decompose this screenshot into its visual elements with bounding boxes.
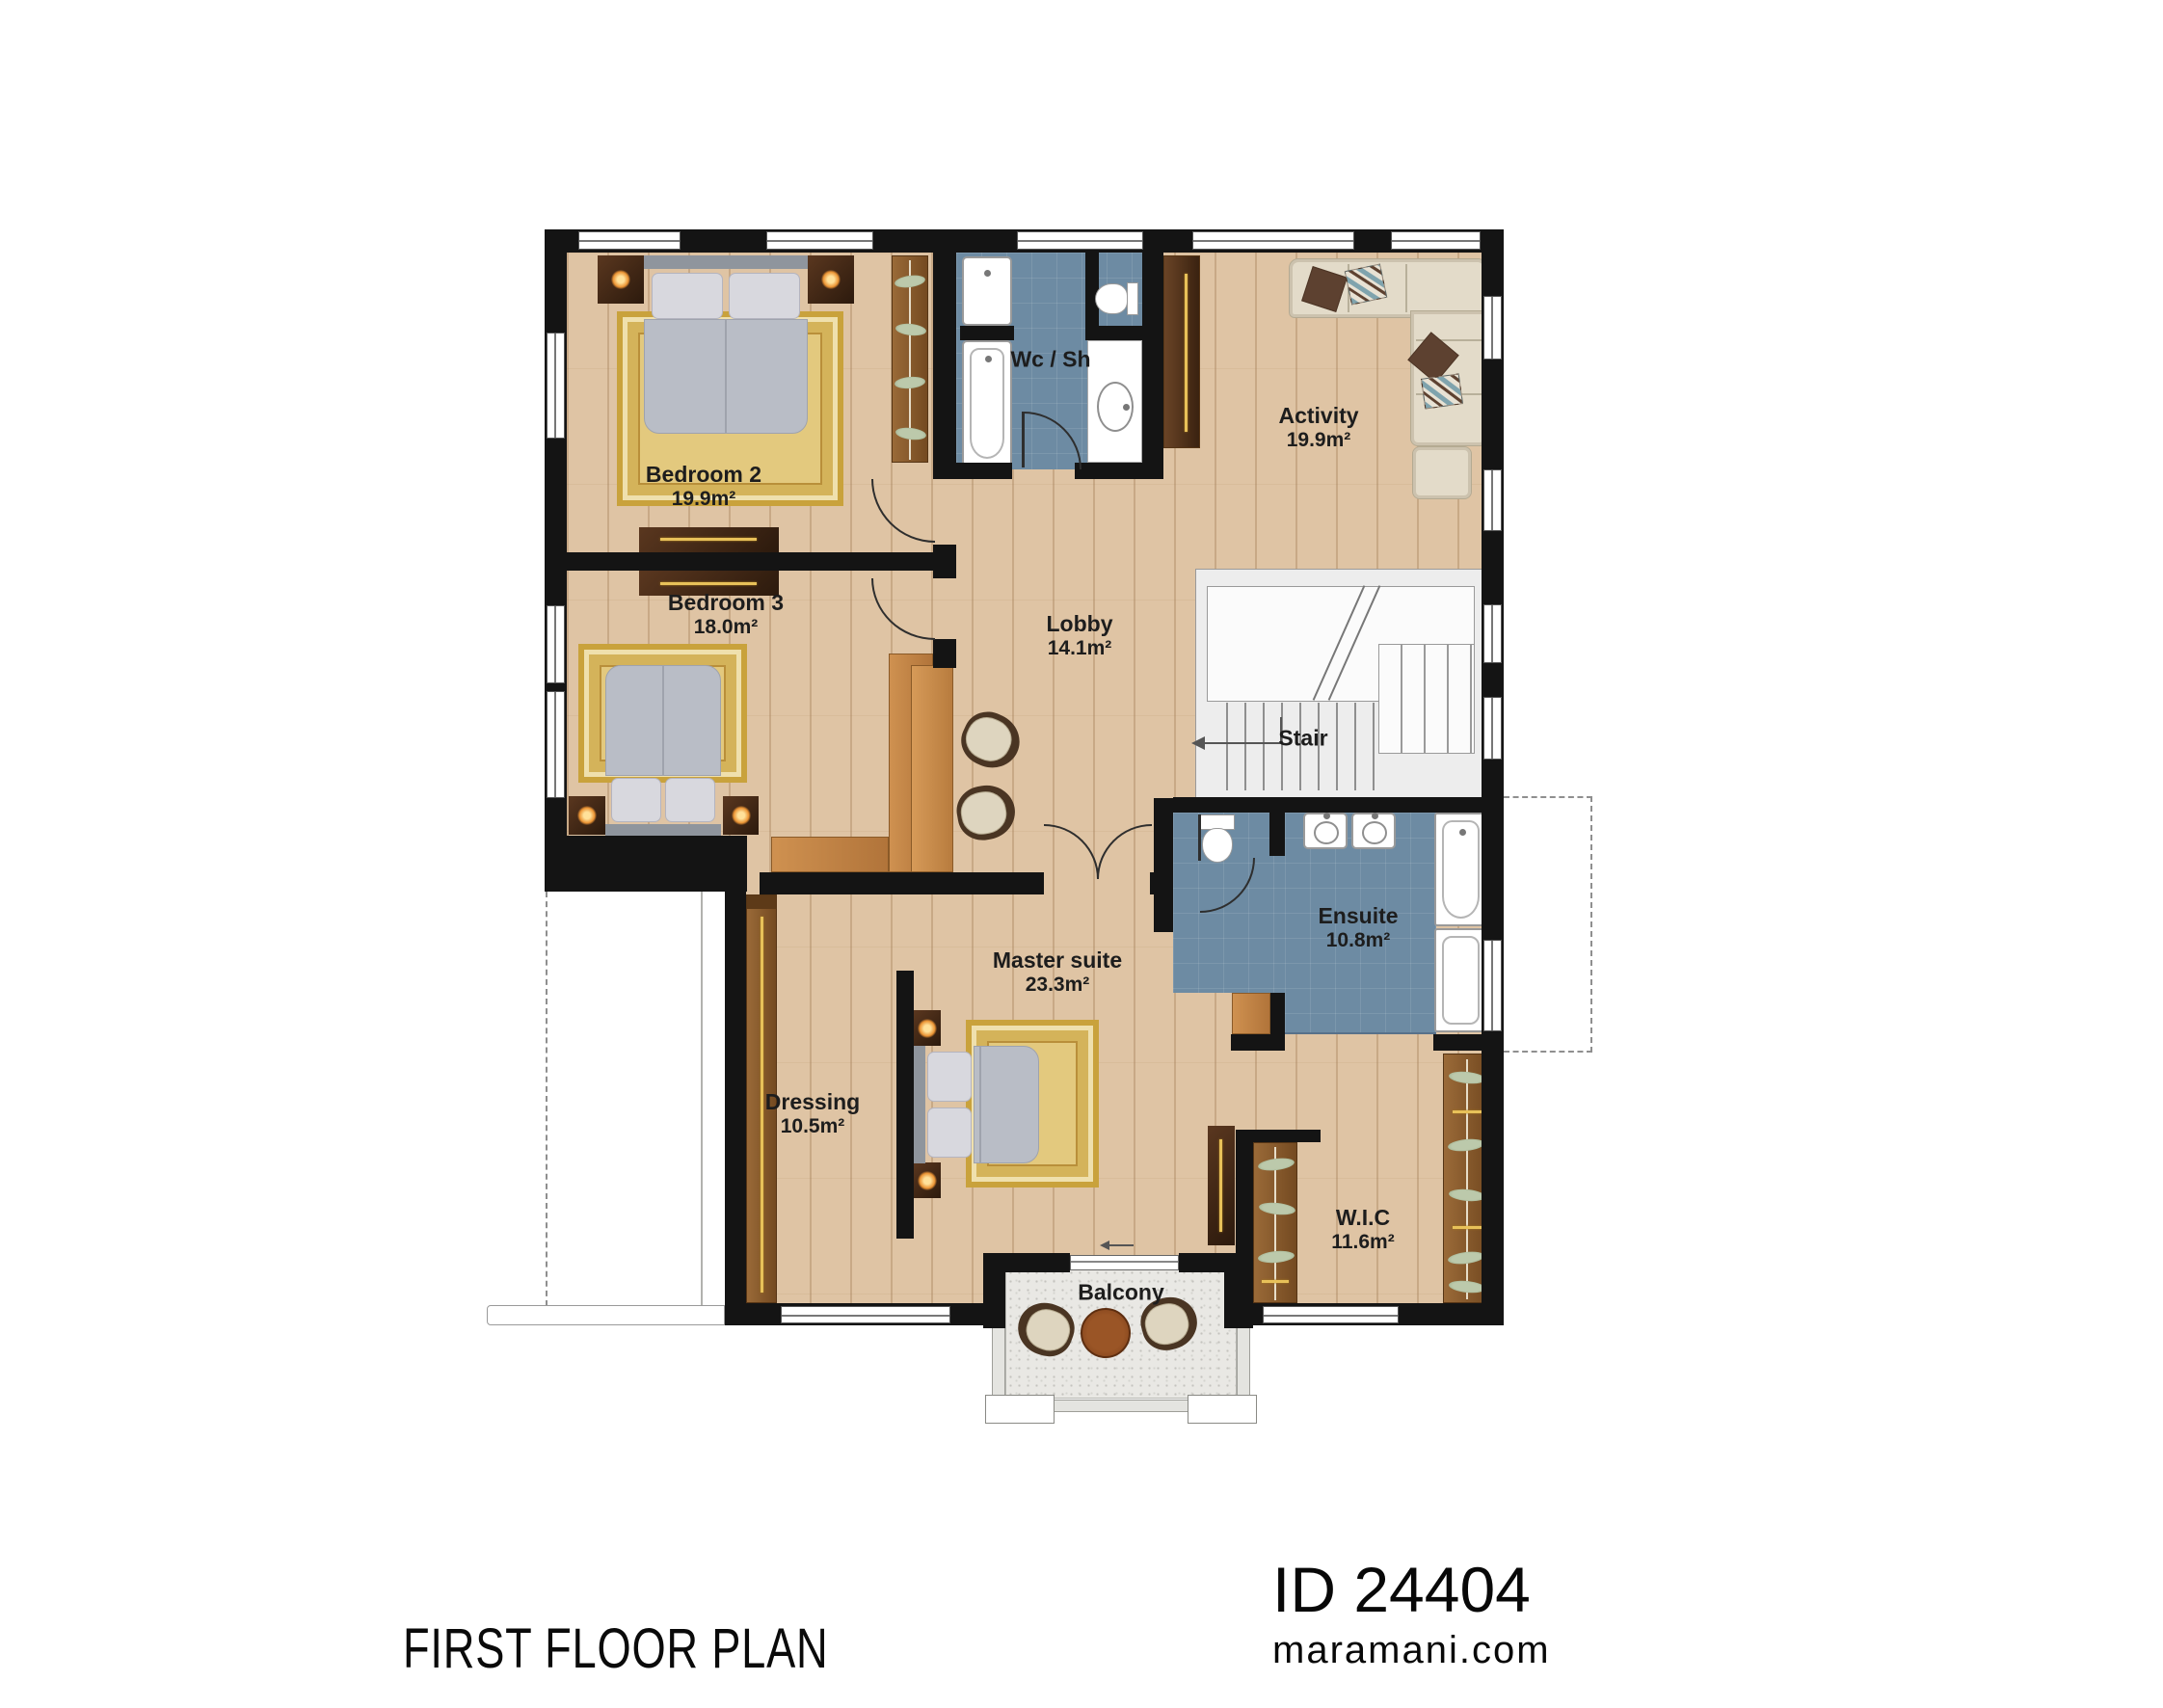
window	[1483, 296, 1502, 360]
plant-leaf	[895, 322, 926, 336]
hanging-clothes	[1448, 1279, 1485, 1294]
room-name: Wc / Sh	[1010, 346, 1090, 371]
room-name: Activity	[1278, 403, 1358, 428]
wall-balcony-north-right	[1179, 1253, 1224, 1272]
master-pillow	[927, 1108, 972, 1158]
hanging-clothes	[1447, 1137, 1484, 1153]
sofa-pillow	[1345, 263, 1388, 305]
room-label-stair: Stair	[1278, 725, 1327, 751]
wall-bedroom3-south	[545, 836, 747, 892]
plan-id: ID 24404	[1272, 1558, 1531, 1621]
roof-dashed-right	[1590, 796, 1592, 1053]
sofa-pillow	[1421, 373, 1463, 409]
room-label-bedroom2: Bedroom 2 19.9m²	[646, 462, 761, 512]
bedroom2-pillow	[729, 273, 800, 319]
stair-upper-flight	[1378, 644, 1475, 754]
room-name: W.I.C	[1336, 1205, 1390, 1230]
roof-below-area	[538, 892, 725, 1308]
plant-leaf	[894, 274, 925, 289]
room-name: Stair	[1278, 725, 1327, 750]
master-duvet-fold	[979, 1046, 981, 1163]
ensuite-sink-icon	[1351, 813, 1396, 849]
balcony-door-sill	[1070, 1255, 1179, 1270]
window	[1017, 231, 1143, 250]
room-name: Lobby	[1047, 611, 1113, 636]
room-name: Bedroom 2	[646, 462, 761, 487]
wall-balcony-side-left	[983, 1253, 1005, 1328]
wall-ensuite-west	[1154, 798, 1173, 932]
room-label-bedroom3: Bedroom 3 18.0m²	[668, 590, 784, 640]
wall-stair-south	[1173, 797, 1482, 813]
lower-roof-ledge	[487, 1305, 725, 1325]
window	[1391, 231, 1481, 250]
bedroom3-nightstand-left	[569, 796, 605, 835]
bedroom3-bed-headboard	[605, 824, 721, 836]
window	[781, 1306, 950, 1323]
plant-leaf	[895, 426, 926, 441]
door-leaf	[1198, 814, 1201, 861]
bedroom2-nightstand-left	[598, 255, 644, 304]
stair-arrow-icon	[1191, 736, 1205, 750]
room-label-balcony: Balcony	[1078, 1279, 1163, 1305]
stair-direction-line	[1203, 742, 1282, 744]
wall-wcsh-east	[1142, 253, 1163, 479]
ensuite-divider-stub	[1269, 813, 1285, 856]
lobby-wood-panel	[911, 665, 953, 872]
bedroom2-dresser	[639, 527, 779, 552]
wall-bedroom-divider	[545, 552, 933, 571]
master-bed-headboard	[914, 1046, 925, 1163]
bedroom2-nightstand-right	[808, 255, 854, 304]
wall-balcony-side-right	[1224, 1253, 1253, 1328]
bedroom2-duvet-fold	[725, 319, 727, 434]
window	[578, 231, 681, 250]
window	[547, 605, 565, 683]
window	[1483, 697, 1502, 760]
room-name: Master suite	[993, 947, 1122, 973]
bedroom2-bed-headboard	[644, 255, 808, 269]
window	[1263, 1306, 1399, 1323]
room-label-master: Master suite 23.3m²	[993, 947, 1122, 998]
room-label-ensuite: Ensuite 10.8m²	[1318, 903, 1398, 953]
bedroom3-nightstand-right	[723, 796, 759, 835]
master-pillow	[927, 1052, 972, 1102]
wall-bedrooms-east-b	[933, 545, 956, 578]
wall-bedrooms-east-a	[933, 253, 956, 479]
activity-sofa-chaise	[1412, 446, 1472, 499]
wall-balcony-north-left	[1005, 1253, 1070, 1272]
wcsh-sink-divider-wall	[1085, 326, 1142, 340]
window	[1483, 604, 1502, 663]
room-label-activity: Activity 19.9m²	[1278, 403, 1358, 453]
activity-wardrobe	[1163, 255, 1200, 448]
wic-wardrobe-left	[1253, 1142, 1297, 1303]
wall-exterior-right	[1482, 229, 1504, 1325]
balcony-post-right	[1188, 1395, 1257, 1424]
wall-ensuite-sw-horizontal	[1231, 1034, 1285, 1051]
room-area: 14.1m²	[1047, 637, 1113, 661]
room-area: 23.3m²	[993, 974, 1122, 998]
room-name: Bedroom 3	[668, 590, 784, 615]
ensuite-bathtub-icon	[1434, 813, 1487, 926]
shower-tray-icon	[962, 256, 1012, 326]
bedroom3-duvet-fold	[662, 665, 664, 776]
window	[766, 231, 873, 250]
hanging-clothes	[1257, 1157, 1295, 1173]
room-area: 19.9m²	[646, 488, 761, 512]
wall-master-spine	[896, 971, 914, 1239]
room-area: 10.8m²	[1318, 929, 1398, 953]
wall-bedrooms-east-c	[933, 639, 956, 668]
room-name: Dressing	[765, 1089, 860, 1114]
wall-ensuite-south-east	[1433, 1034, 1504, 1051]
room-area: 19.9m²	[1278, 429, 1358, 453]
bedroom3-pillow	[611, 778, 661, 822]
room-label-wcsh: Wc / Sh	[1010, 346, 1090, 372]
wcsh-stub-wall	[960, 326, 1014, 340]
roof-dashed-bottom	[1504, 1051, 1592, 1053]
hanging-clothes	[1258, 1201, 1295, 1216]
room-area: 18.0m²	[668, 616, 784, 640]
balcony-entry-line	[1108, 1244, 1134, 1246]
ensuite-shower-icon	[1434, 928, 1487, 1032]
wall-exterior-left-lower	[725, 848, 746, 1325]
bedroom3-pillow	[665, 778, 715, 822]
master-nightstand-top	[914, 1010, 941, 1046]
plant-leaf	[895, 376, 926, 390]
room-area: 11.6m²	[1331, 1231, 1394, 1255]
balcony-post-left	[985, 1395, 1055, 1424]
plan-title: FIRST FLOOR PLAN	[403, 1621, 829, 1677]
window	[1192, 231, 1354, 250]
window	[547, 691, 565, 798]
roof-dashed-outline-left	[546, 892, 547, 1306]
brand-website: maramani.com	[1272, 1631, 1551, 1669]
roof-edge-line	[701, 892, 703, 1306]
wcsh-bathtub-icon	[962, 340, 1012, 467]
ensuite-corner-cabinet	[1232, 993, 1270, 1034]
wall-wcsh-south-a	[956, 463, 1012, 479]
floor-plan-canvas: Bedroom 2 19.9m² Bedroom 3 18.0m² Wc / S…	[0, 0, 2163, 1708]
hanging-clothes	[1258, 1249, 1295, 1264]
balcony-entry-arrow-icon	[1100, 1241, 1109, 1250]
wcsh-sink-icon	[1097, 382, 1134, 432]
room-label-lobby: Lobby 14.1m²	[1047, 611, 1113, 661]
bedroom2-pillow	[652, 273, 723, 319]
room-label-wic: W.I.C 11.6m²	[1331, 1205, 1394, 1255]
room-name: Ensuite	[1318, 903, 1398, 928]
room-area: 10.5m²	[765, 1115, 860, 1139]
master-tall-dresser	[1208, 1126, 1235, 1245]
window	[1483, 469, 1502, 531]
bedroom3-desk-horizontal	[771, 837, 889, 872]
window	[547, 333, 565, 439]
master-bed-duvet	[974, 1046, 1039, 1163]
hanging-clothes	[1449, 1188, 1486, 1202]
roof-dashed-top	[1504, 796, 1592, 798]
room-label-dressing: Dressing 10.5m²	[765, 1089, 860, 1139]
ensuite-sink-icon	[1303, 813, 1348, 849]
wcsh-toilet-icon	[1095, 280, 1139, 317]
room-name: Balcony	[1078, 1279, 1163, 1304]
balcony-table-icon	[1081, 1308, 1131, 1358]
bedroom2-plant-shelf	[892, 255, 928, 463]
hanging-clothes	[1447, 1250, 1484, 1267]
hanging-clothes	[1448, 1070, 1485, 1085]
wall-lobby-south-a	[760, 872, 1044, 894]
window	[1483, 940, 1502, 1031]
master-nightstand-bottom	[914, 1162, 941, 1198]
